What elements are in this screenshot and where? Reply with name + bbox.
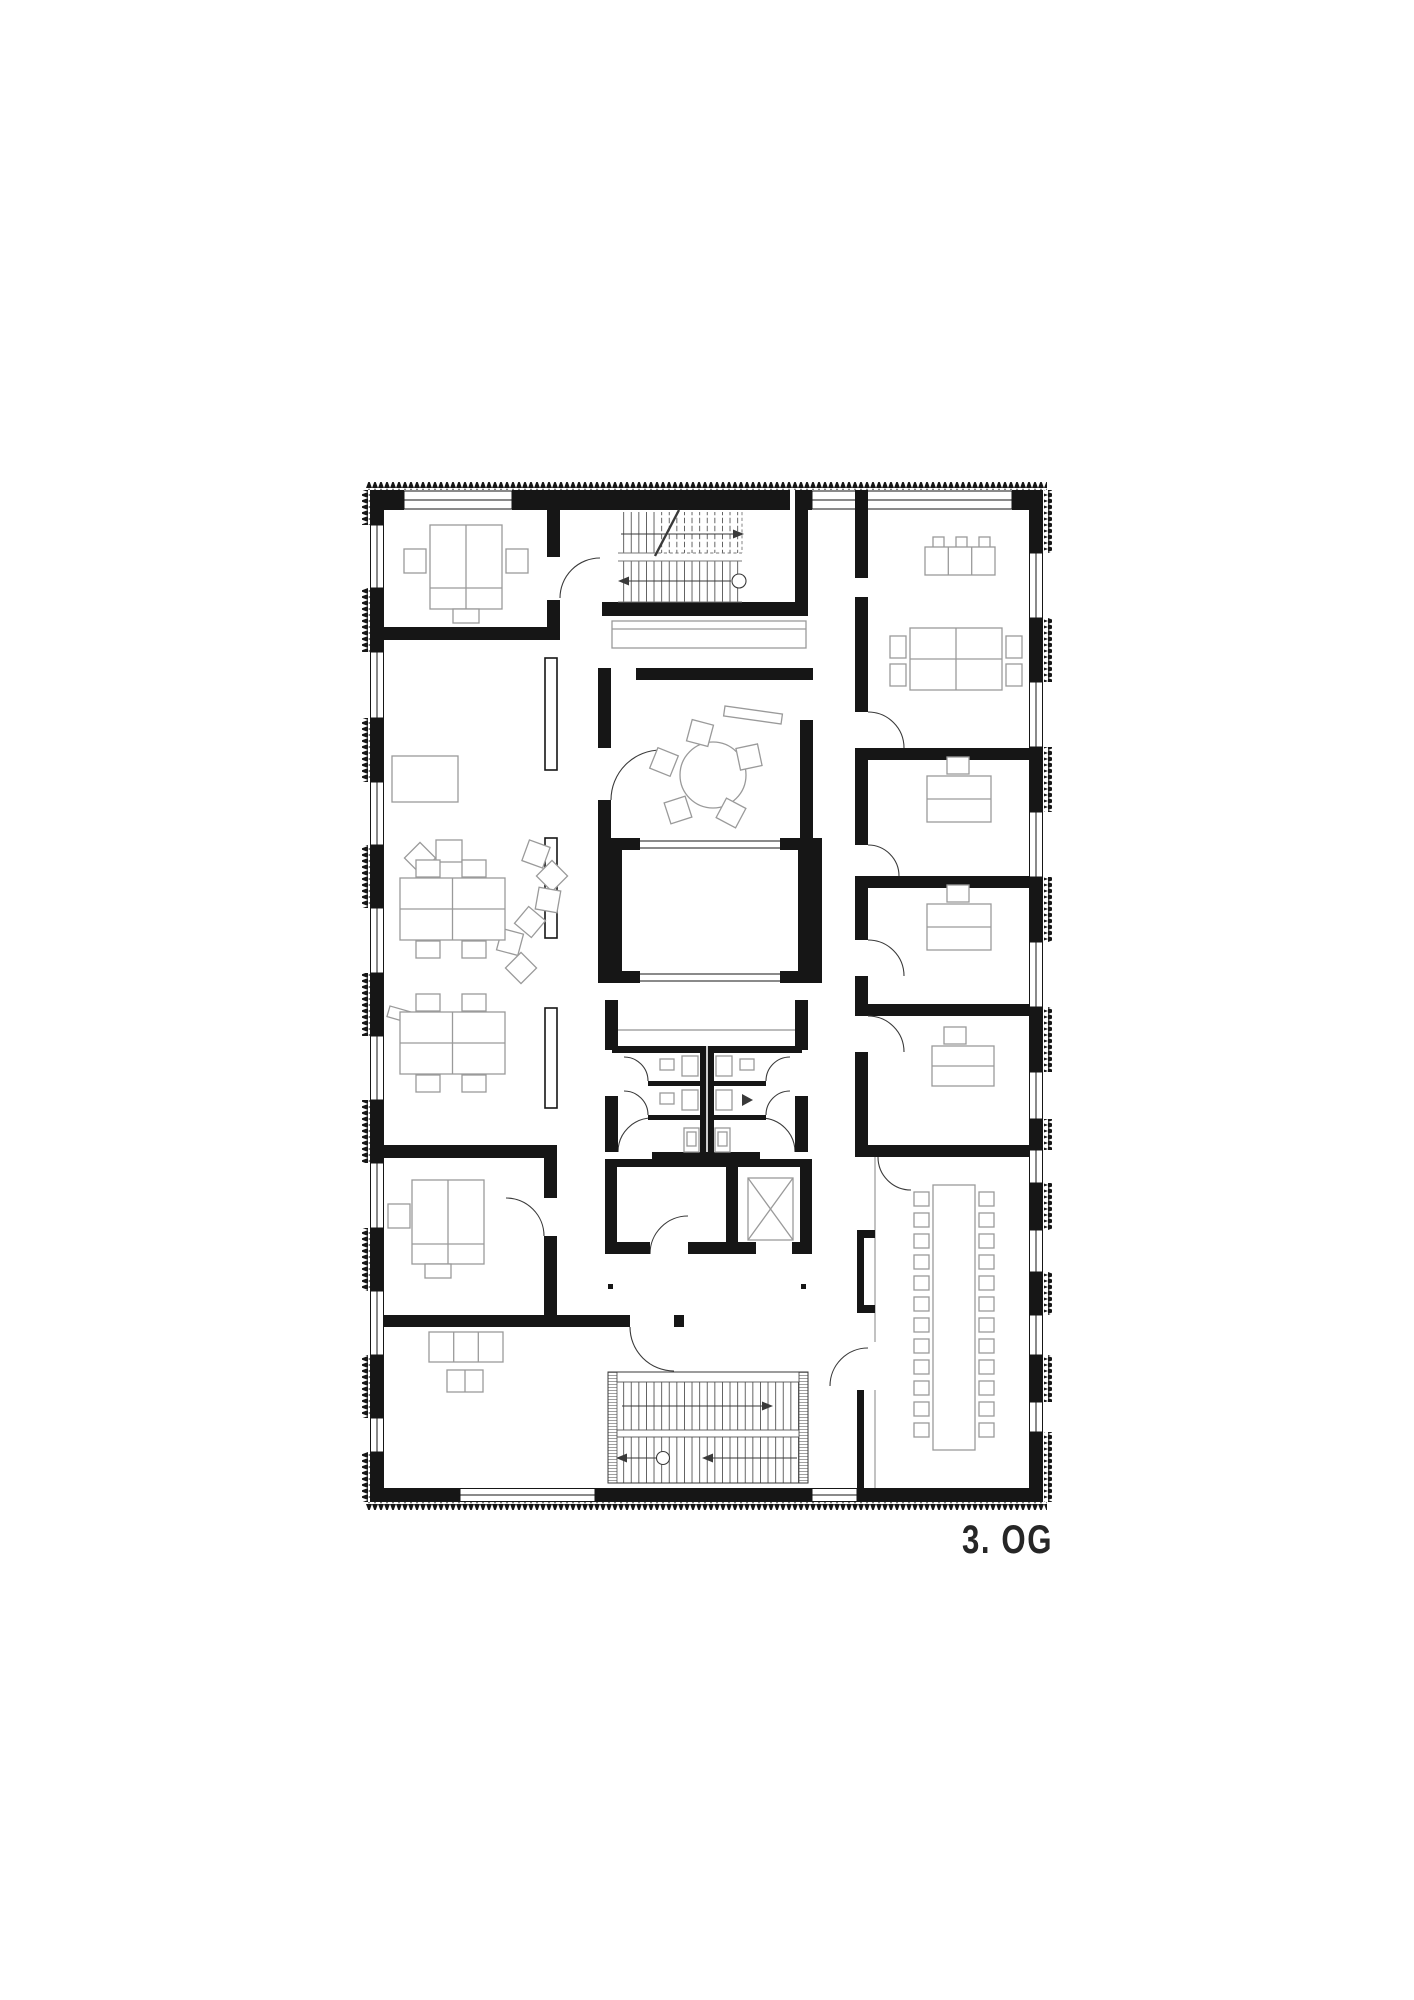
floor-plan [0, 0, 1414, 2000]
door-swing-arc [868, 940, 904, 976]
sideboard [925, 547, 995, 575]
door-swing-arc [761, 1118, 795, 1152]
desk-cluster [400, 860, 505, 958]
cistern [740, 1059, 754, 1070]
chair [506, 549, 528, 573]
chair [979, 1339, 994, 1353]
door-swing-arc [868, 845, 899, 876]
chair [687, 720, 714, 747]
bottom-wall [370, 1488, 1043, 1502]
chair [979, 1234, 994, 1248]
door-swing-arc [624, 1091, 648, 1115]
chair [664, 796, 692, 824]
chair [914, 1381, 929, 1395]
desk-cluster [400, 994, 505, 1092]
chair [979, 1318, 994, 1332]
atrium-void [598, 838, 822, 983]
chair [890, 636, 906, 658]
right-wall [1029, 490, 1043, 1502]
door-swings [506, 558, 911, 1386]
chair [947, 885, 969, 902]
door-swing-arc [868, 1016, 904, 1052]
left-wall [370, 490, 384, 1502]
staircase-top [612, 510, 806, 648]
door-swing-arc [618, 1118, 652, 1152]
chair [914, 1423, 929, 1437]
chair [404, 549, 426, 573]
chair [914, 1276, 929, 1290]
door-swing-arc [630, 1327, 674, 1371]
chair [979, 1276, 994, 1290]
sideboard [429, 1332, 503, 1362]
chair [979, 1192, 994, 1206]
partition-screen [545, 658, 557, 770]
elevator-storage [605, 1159, 812, 1254]
furniture [387, 525, 1022, 1450]
hatch-bottom [366, 1502, 1047, 1510]
column [801, 1284, 806, 1289]
desk-top-left [404, 525, 528, 623]
toilet [682, 1090, 698, 1110]
chair [979, 1297, 994, 1311]
chair [956, 537, 967, 548]
door-swing-arc [650, 1216, 688, 1254]
chair [914, 1234, 929, 1248]
top-wall [370, 490, 1043, 510]
hatch-right [1044, 490, 1052, 1502]
chair [979, 1381, 994, 1395]
chair [933, 537, 944, 548]
hatch-top [366, 482, 1047, 490]
chair [914, 1255, 929, 1269]
chair [947, 757, 969, 774]
conference-room-furniture [914, 1185, 994, 1450]
desk-cluster [890, 628, 1022, 690]
table [392, 756, 458, 802]
hatch-left [362, 490, 370, 1502]
chair [979, 537, 990, 548]
sideboard [612, 621, 806, 648]
toilet [716, 1056, 732, 1076]
elevator [748, 1178, 793, 1240]
chair [914, 1297, 929, 1311]
chair [979, 1402, 994, 1416]
chair [914, 1339, 929, 1353]
door-swing-arc [830, 1348, 868, 1386]
chair [979, 1360, 994, 1374]
toilet [716, 1090, 732, 1110]
chair [914, 1213, 929, 1227]
chair [436, 840, 462, 862]
wc-core [605, 1000, 808, 1159]
chair [979, 1423, 994, 1437]
chair [914, 1318, 929, 1332]
chair [914, 1402, 929, 1416]
cistern [660, 1059, 674, 1070]
door-swing-arc [560, 558, 600, 598]
chair [979, 1255, 994, 1269]
door-swing-arc [766, 1057, 790, 1081]
chair [890, 664, 906, 686]
chair [1006, 664, 1022, 686]
door-swing-arc [868, 712, 904, 748]
chair [736, 744, 762, 770]
chair [979, 1213, 994, 1227]
cistern [660, 1093, 674, 1104]
desk-bottom-left [388, 1180, 484, 1278]
whiteboard [724, 706, 783, 724]
chair [535, 887, 560, 912]
conference-table [933, 1185, 975, 1450]
toilet [682, 1056, 698, 1076]
stair-start-marker [732, 574, 746, 588]
column [608, 1284, 613, 1289]
chair [505, 952, 536, 983]
door-swing-arc [624, 1057, 648, 1081]
door-marker [742, 1094, 753, 1106]
staircase-bottom [608, 1372, 808, 1483]
chair [944, 1027, 966, 1044]
door-swing-arc [878, 1157, 911, 1190]
floor-label: 3. OG [962, 1518, 1053, 1563]
chair [914, 1192, 929, 1206]
chair [1006, 636, 1022, 658]
door-swing-arc [766, 1091, 790, 1115]
chair [914, 1360, 929, 1374]
chair [650, 748, 679, 777]
meeting-room-furniture [650, 706, 783, 828]
chair [388, 1204, 410, 1228]
partition-screen [545, 1008, 557, 1108]
door-swing-arc [506, 1198, 544, 1236]
stair-start-marker [657, 1452, 670, 1465]
drawing-sheet: 3. OG [0, 0, 1414, 2000]
